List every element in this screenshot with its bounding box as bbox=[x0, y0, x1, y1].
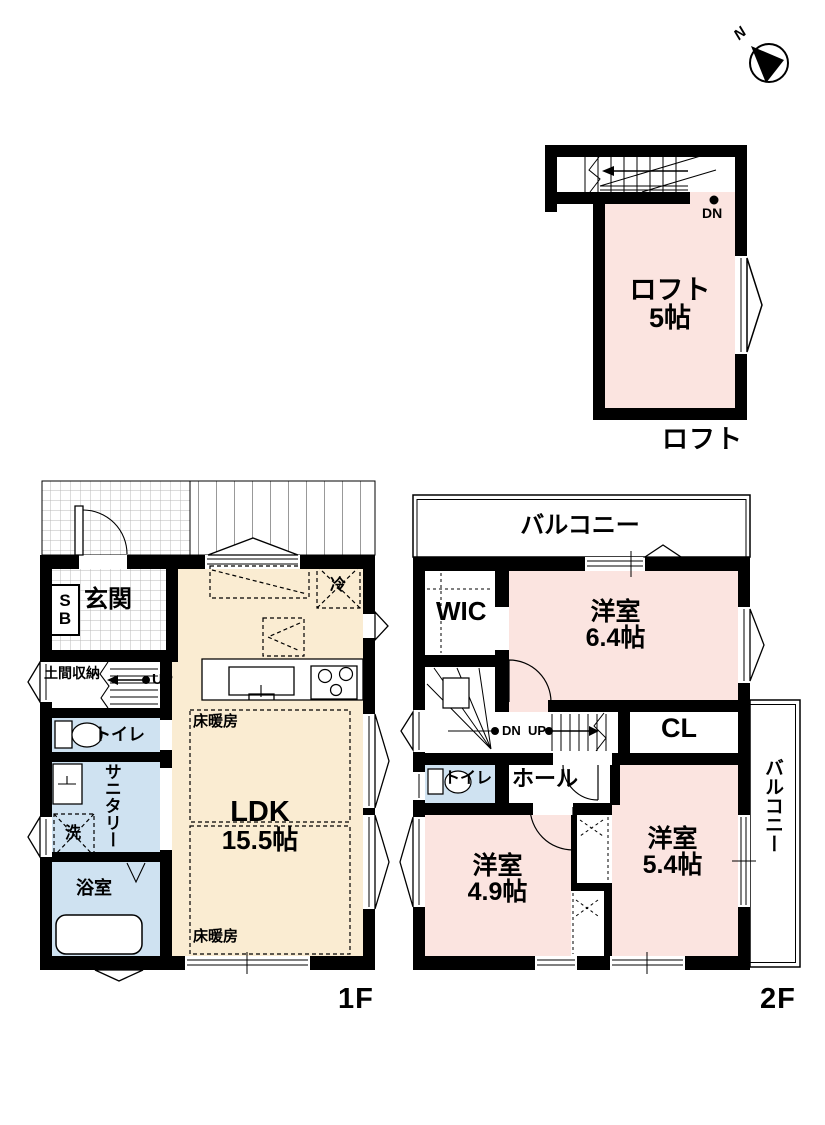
up-label-1f: UP bbox=[152, 672, 173, 688]
genkan-label: 玄関 bbox=[84, 587, 132, 612]
floor2-caption: 2F bbox=[760, 984, 796, 1014]
dn-label-2f: DN bbox=[502, 724, 521, 738]
room54-size: 5.4帖 bbox=[643, 852, 703, 878]
loft-stair-arrowhead bbox=[602, 166, 614, 176]
room64-label: 洋室 6.4帖 bbox=[548, 599, 683, 652]
floor1-caption: 1F bbox=[338, 984, 374, 1014]
first-floor-plan bbox=[28, 481, 389, 981]
floor-plan-page: N ロフト 5帖 DN ロフト 玄関 S B 土間収納 UP トイレ サニタリー… bbox=[0, 0, 825, 1125]
room49-label: 洋室 4.9帖 bbox=[430, 853, 565, 906]
stove-burner-icon bbox=[340, 668, 353, 681]
floor-plan-drawing bbox=[0, 0, 825, 1125]
fridge-label: 冷 bbox=[330, 578, 346, 595]
room49-size: 4.9帖 bbox=[468, 879, 528, 905]
shoe-box-line1: S bbox=[59, 592, 70, 610]
sanitary-label: サニタリー bbox=[102, 763, 120, 855]
doma-storage-label: 土間収納 bbox=[44, 666, 100, 681]
room54-name: 洋室 bbox=[647, 826, 697, 852]
loft-room-name: ロフト bbox=[630, 276, 711, 304]
shoe-box: S B bbox=[50, 584, 80, 636]
stove-burner-icon bbox=[319, 670, 332, 683]
toilet-label-2f: トイレ bbox=[444, 771, 492, 788]
balcony-right-label: バルコニー bbox=[762, 758, 782, 913]
entrance-approach-tile bbox=[42, 481, 190, 555]
cl-label: CL bbox=[661, 714, 697, 742]
ldk-label: LDK 15.5帖 bbox=[195, 797, 325, 855]
bathtub-icon bbox=[56, 915, 142, 954]
deck-stripes bbox=[190, 481, 375, 555]
ldk-size: 15.5帖 bbox=[222, 827, 299, 854]
washer-label: 洗 bbox=[65, 826, 81, 843]
ldk-fill bbox=[172, 569, 363, 956]
up-label-2f: UP bbox=[528, 724, 546, 738]
room64-size: 6.4帖 bbox=[586, 625, 646, 651]
bath-label: 浴室 bbox=[76, 879, 112, 898]
room64-name: 洋室 bbox=[590, 599, 640, 625]
stove-burner-icon bbox=[331, 685, 342, 696]
floor-heating-label-lower: 床暖房 bbox=[193, 929, 238, 945]
dn-dot bbox=[491, 727, 499, 735]
up-dot bbox=[142, 676, 150, 684]
floor-heating-label-upper: 床暖房 bbox=[193, 714, 238, 730]
dn-dot bbox=[710, 196, 719, 205]
room49-name: 洋室 bbox=[472, 853, 522, 879]
toilet-label-1f: トイレ bbox=[94, 726, 145, 744]
loft-dn-label: DN bbox=[702, 206, 722, 221]
window-casement-icon bbox=[747, 258, 762, 352]
hall-label: ホール bbox=[512, 767, 578, 790]
room54-label: 洋室 5.4帖 bbox=[605, 826, 740, 879]
loft-caption: ロフト bbox=[662, 426, 743, 453]
shoe-box-line2: B bbox=[59, 610, 71, 628]
ldk-name: LDK bbox=[230, 797, 290, 827]
loft-room-size: 5帖 bbox=[649, 304, 691, 332]
loft-room-label: ロフト 5帖 bbox=[605, 276, 735, 333]
up-dot bbox=[545, 727, 553, 735]
compass-icon bbox=[750, 44, 788, 83]
balcony-top-label: バルコニー bbox=[455, 513, 705, 538]
wic-label: WIC bbox=[436, 598, 487, 625]
